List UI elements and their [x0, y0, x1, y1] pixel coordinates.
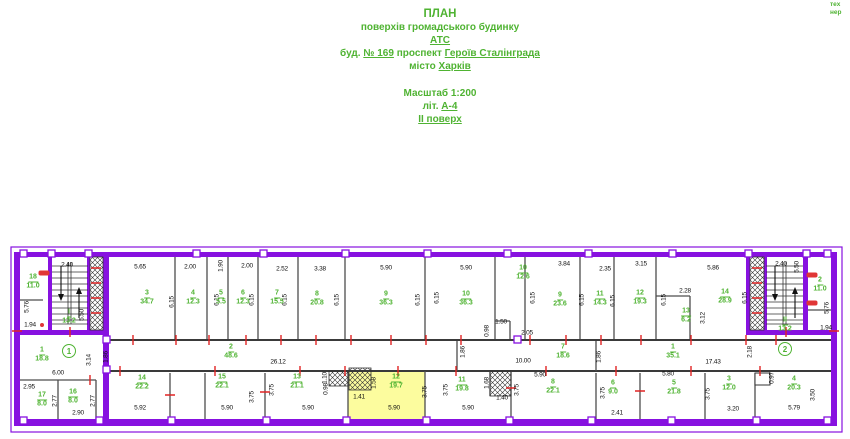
dimension-text: 2.40 [775, 261, 787, 268]
dimension-text: 3.75 [600, 387, 607, 399]
room-label: 168.0 [68, 389, 78, 406]
room-label: 521.8 [667, 380, 681, 397]
dimension-text: 5.90 [460, 265, 472, 272]
red-tag-icon [807, 301, 818, 306]
room-label: 1422.2 [135, 375, 149, 392]
room-label: 1036.3 [459, 291, 473, 308]
dimension-text: 17.43 [705, 359, 720, 366]
dimension-text: 2.28 [679, 288, 691, 295]
dimension-text: 2.41 [611, 410, 623, 417]
dimension-text: 6.15 [434, 292, 441, 304]
dimension-text: 5.76 [24, 301, 31, 313]
room-label: 923.6 [553, 292, 567, 309]
dimension-text: 6.15 [661, 294, 668, 306]
dimension-text: 5.90 [462, 405, 474, 412]
dimension-text: 3.84 [558, 261, 570, 268]
room-label: 55.5 [216, 290, 226, 307]
dimension-text: 1.58 [371, 377, 378, 389]
address-line: буд. № 169 проспект Героїв Сталінграда [300, 47, 580, 60]
dimension-text: 10.00 [515, 358, 530, 365]
room-label: 820.8 [310, 291, 324, 308]
room-label: 412.3 [186, 290, 200, 307]
dimension-text: 0.98 [323, 383, 330, 395]
dimension-text: 6.15 [610, 295, 617, 307]
dimension-text: 1.94 [820, 325, 832, 332]
room-label: ІІ13.2 [778, 317, 792, 334]
title-block: ПЛАН поверхів громадського будинку АТС б… [300, 8, 580, 126]
dimension-text: 3.14 [86, 354, 93, 366]
room-label: 1219.3 [633, 290, 647, 307]
dimension-text: 1.40 [496, 395, 508, 402]
corridor-walls [109, 340, 831, 371]
dimension-text: 6.15 [169, 296, 176, 308]
dimension-text: 6.15 [530, 292, 537, 304]
dimension-text: 5.90 [302, 405, 314, 412]
dimension-text: 2.95 [23, 384, 35, 391]
dimension-text: 5.50 [794, 261, 801, 273]
dimension-text: 6.15 [579, 294, 586, 306]
dimension-text: 1.86 [460, 346, 467, 358]
room-label: 1428.9 [718, 289, 732, 306]
dimension-text: 2.52 [276, 266, 288, 273]
dimension-text: 5.90 [221, 405, 233, 412]
room-label: 178.0 [37, 392, 47, 409]
room-label: 248.6 [224, 344, 238, 361]
dimension-text: 5.76 [824, 302, 831, 314]
floor-line: ІІ поверх [300, 113, 580, 126]
dimension-text: 5.79 [788, 405, 800, 412]
room-label: 1114.3 [593, 291, 607, 308]
room-label: 715.5 [270, 290, 284, 307]
dimension-text: 1.94 [24, 322, 36, 329]
dimension-text: 3.38 [314, 266, 326, 273]
scale-line: Масштаб 1:200 [300, 87, 580, 100]
dimension-text: 0.97 [769, 372, 776, 384]
corridor-stub-walls [457, 341, 596, 371]
room-label: 822.1 [546, 379, 560, 396]
axis-marker: 2 [778, 342, 792, 356]
dimension-text: 2.77 [52, 395, 59, 407]
room-label: 211.0 [813, 277, 826, 294]
room-label: 718.6 [556, 344, 570, 361]
room-label: 1522.1 [215, 374, 229, 391]
red-tag-icon [40, 323, 44, 327]
dimension-text: 6.00 [52, 370, 64, 377]
dimension-text: 5.92 [134, 405, 146, 412]
dimension-text: 5.90 [534, 372, 546, 379]
dimension-text: 3.75 [269, 384, 276, 396]
room-label: 312.0 [722, 376, 736, 393]
dimension-text: 3.12 [700, 312, 707, 324]
axis-marker: 1 [62, 344, 76, 358]
dimension-text: 6.15 [334, 294, 341, 306]
dimension-text: 5.50 [79, 309, 86, 321]
dimension-text: 2.77 [90, 395, 97, 407]
dimension-text: 3.75 [705, 388, 712, 400]
lit-line: літ. А-4 [300, 100, 580, 113]
room-label: 1811.0 [26, 274, 39, 291]
corner-note: тех нер [830, 1, 842, 17]
dimension-text: 5.90 [380, 265, 392, 272]
room-label: 612.3 [236, 290, 250, 307]
room-label: 334.7 [140, 290, 154, 307]
dimension-text: 3.75 [443, 384, 450, 396]
dimension-text: 5.65 [134, 264, 146, 271]
red-tag-icon [807, 273, 818, 278]
dimension-text: 1.41 [353, 394, 365, 401]
dimension-text: 2.40 [61, 262, 73, 269]
dimension-text: 5.90 [388, 405, 400, 412]
dimension-text: 26.12 [270, 359, 285, 366]
building-name: АТС [300, 34, 580, 47]
floorplan-linework [0, 240, 850, 439]
dimension-text: 2.00 [241, 263, 253, 270]
room-label: 1219.7 [389, 374, 403, 391]
dimension-text: 3.20 [727, 406, 739, 413]
dimension-text: 3.75 [422, 386, 429, 398]
room-label: 69.0 [608, 380, 618, 397]
dimension-text: 2.35 [599, 266, 611, 273]
room-label: 135.1 [666, 344, 680, 361]
dimension-text: 2.00 [184, 264, 196, 271]
dimension-text: 0.98 [484, 325, 491, 337]
city-line: місто Харків [300, 60, 580, 73]
room-label: 936.3 [379, 291, 393, 308]
dimension-text: 2.90 [72, 410, 84, 417]
red-tag-icon [39, 271, 50, 276]
dimension-text: 3.75 [514, 384, 521, 396]
dimension-text: 1.86 [103, 351, 110, 363]
dimension-text: 3.75 [249, 391, 256, 403]
dimension-text: 3.15 [635, 261, 647, 268]
dimension-text: 2.18 [747, 346, 754, 358]
dimension-text: 6.15 [742, 292, 749, 304]
plan-title: ПЛАН [300, 8, 580, 21]
dimension-text: 5.80 [662, 371, 674, 378]
room-label: 420.3 [787, 376, 801, 393]
room-label: 118.8 [35, 347, 49, 364]
room-label: 1321.1 [290, 374, 304, 391]
room-label: 1119.8 [455, 377, 469, 394]
dimension-text: 3.50 [810, 389, 817, 401]
room-label: 136.2 [681, 308, 691, 325]
dimension-text: 6.15 [415, 294, 422, 306]
dimension-text: 1.90 [218, 260, 225, 272]
dimension-text: 2.05 [521, 330, 533, 337]
dimension-text: 1.68 [484, 377, 491, 389]
dimension-text: 1.86 [596, 351, 603, 363]
dimension-text: 1.50 [495, 319, 507, 326]
room-label: 1012.6 [516, 265, 530, 282]
plan-subtitle: поверхів громадського будинку [300, 21, 580, 34]
dimension-text: 5.86 [707, 265, 719, 272]
room-label: І13.2 [62, 309, 76, 326]
